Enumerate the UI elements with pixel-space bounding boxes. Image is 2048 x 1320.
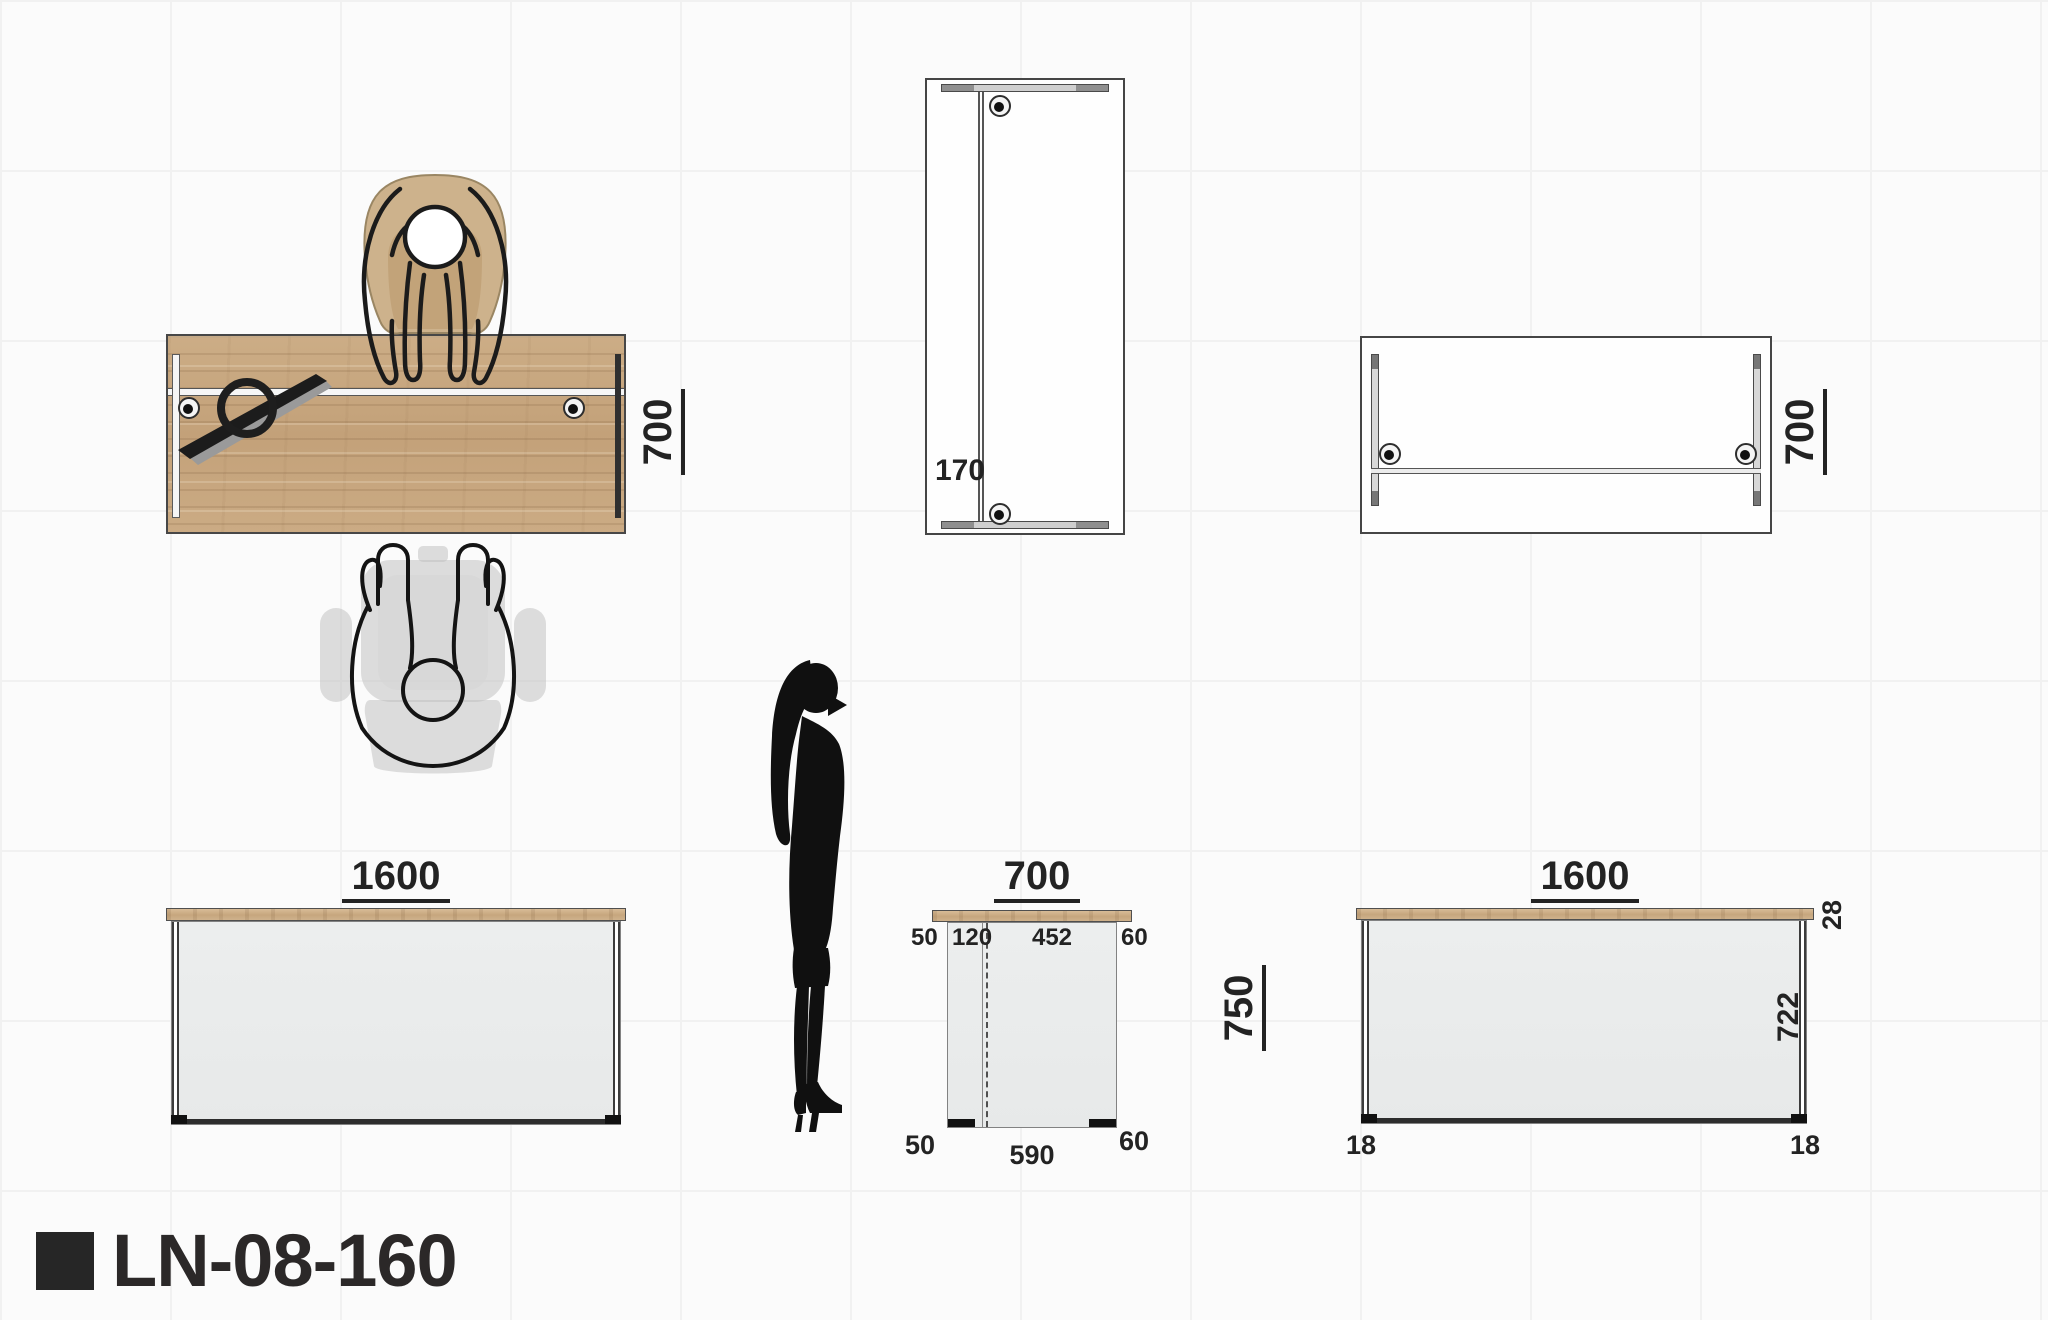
leg-rail-bottom <box>941 521 1109 529</box>
tray-offset-dimension: 170 <box>935 456 985 486</box>
leveling-foot <box>1791 1114 1807 1123</box>
cable-grommet-icon <box>989 95 1011 117</box>
plan-narrow-view: 170 <box>925 78 1125 535</box>
side-top-dim-452: 452 <box>1022 926 1082 950</box>
side-height-dimension: 750 <box>1222 948 1262 1068</box>
desktop-edge-strip-right <box>1356 908 1814 920</box>
side-panel <box>947 922 1117 1128</box>
desk-leg-left-front <box>172 922 179 1120</box>
front-right-width-dimension: 1600 <box>1356 856 1814 903</box>
dimension-value: 722 <box>1774 992 1804 1042</box>
side-bottom-dim-590: 590 <box>1002 1142 1062 1169</box>
cross-rail <box>1371 468 1761 474</box>
cable-grommet-icon <box>1379 443 1401 465</box>
cable-grommet-icon <box>1735 443 1757 465</box>
top-thickness-dimension: 28 <box>1815 875 1849 955</box>
leveling-foot <box>171 1115 187 1124</box>
model-code: LN-08-160 <box>112 1218 457 1303</box>
side-top-dim-120: 120 <box>952 926 992 950</box>
modesty-panel-right <box>1361 920 1807 1124</box>
dimension-value: 28 <box>1819 900 1846 930</box>
leveling-foot <box>948 1119 975 1127</box>
panel-height-dimension: 722 <box>1769 962 1809 1072</box>
desktop-edge-strip-side <box>932 910 1132 922</box>
office-chair-with-person-icon <box>308 540 558 785</box>
modesty-panel <box>171 921 621 1125</box>
plan-top-depth-dimension: 700 <box>641 377 681 487</box>
model-badge <box>36 1232 94 1290</box>
desk-leg-left-front <box>1362 921 1369 1119</box>
side-bottom-dim-60: 60 <box>1119 1128 1149 1155</box>
side-top-dim-60: 60 <box>1121 926 1148 950</box>
desk-leg-left-underside <box>1371 354 1379 506</box>
side-top-dim-50: 50 <box>911 926 938 950</box>
leg-panel-hidden-edge <box>982 923 988 1127</box>
visitor-chair-with-person-icon <box>340 163 530 453</box>
leveling-foot <box>605 1115 621 1124</box>
desktop-edge-strip <box>166 908 626 921</box>
cable-grommet-icon <box>989 503 1011 525</box>
dimension-value: 700 <box>638 389 685 476</box>
foot-dimension-left: 18 <box>1346 1132 1376 1159</box>
technical-drawing-sheet: { "title": { "model": "LN-08-160" }, "pl… <box>0 0 2048 1320</box>
leveling-foot <box>1089 1119 1116 1127</box>
desk-leg-right-underside <box>1753 354 1761 506</box>
dimension-value: 750 <box>1219 965 1266 1052</box>
front-elevation-width-dimension: 1600 <box>166 856 626 903</box>
dimension-value: 1600 <box>1531 856 1640 903</box>
human-scale-figure-icon <box>748 650 883 1138</box>
leveling-foot <box>1361 1114 1377 1123</box>
dimension-value: 700 <box>994 856 1081 903</box>
leg-rail-top <box>941 84 1109 92</box>
side-elevation-width-dimension: 700 <box>972 856 1102 903</box>
plan-underside-view <box>1360 336 1772 534</box>
dimension-value: 1600 <box>342 856 451 903</box>
plan-underside-depth-dimension: 700 <box>1783 377 1823 487</box>
foot-dimension-right: 18 <box>1790 1132 1820 1159</box>
bottom-rail <box>1362 1118 1806 1123</box>
desk-leg-right-front <box>613 922 620 1120</box>
dimension-value: 700 <box>1780 389 1827 476</box>
bottom-rail <box>172 1119 620 1124</box>
side-bottom-dim-50: 50 <box>905 1132 935 1159</box>
